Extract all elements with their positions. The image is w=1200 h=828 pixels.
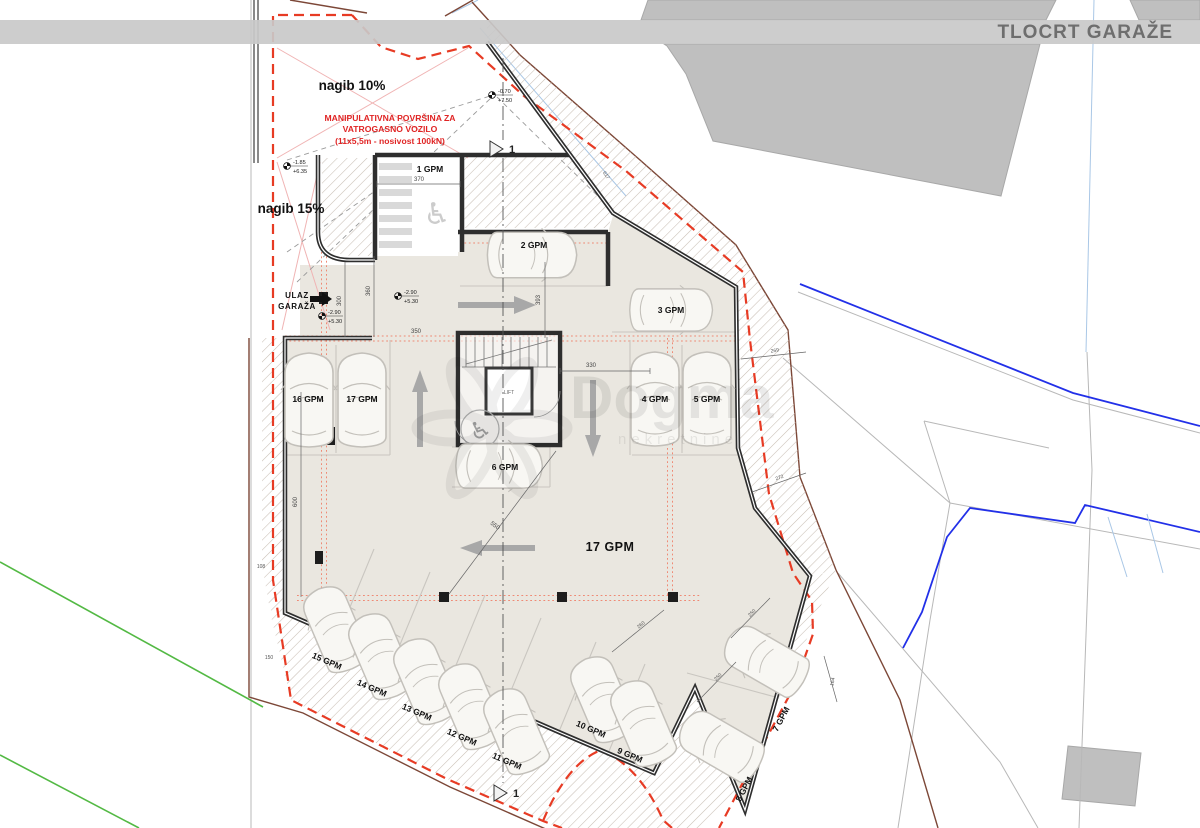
dim-393: 393 (536, 294, 542, 305)
dim-150: 150 (265, 655, 274, 661)
spot-label-16: 16 GPM (292, 394, 323, 404)
terrain-lines-green (0, 562, 263, 828)
section-marker-bottom: 1 (513, 788, 519, 800)
dim-300: 300 (337, 295, 343, 306)
dim-350: 350 (411, 329, 422, 335)
spot-label-4: 4 GPM (642, 394, 668, 404)
spot-label-5: 5 GPM (694, 394, 720, 404)
spot-label-17: 17 GPM (346, 394, 377, 404)
section-marker-top: 1 (509, 144, 515, 156)
watermark-name: Dogma (570, 364, 774, 431)
fire-area-line3: (11x5,5m - nosivost 100kN) (335, 136, 445, 146)
watermark-sub: nekretnine (618, 431, 738, 448)
dim-164: 164 (829, 677, 837, 687)
dim-330: 330 (586, 363, 597, 369)
spot-label-3: 3 GPM (658, 305, 684, 315)
dim-370: 370 (414, 177, 425, 183)
dim-108: 108 (257, 564, 266, 570)
entrance-label-1: ULAZ (285, 291, 309, 300)
building-footprint (1130, 0, 1200, 20)
elevation-lower: +5.30 (328, 319, 342, 325)
elevation-lower: +5.30 (404, 299, 418, 305)
fire-area-line1: MANIPULATIVNA POVRŠINA ZA (325, 112, 456, 123)
elevation-upper: -2.90 (404, 290, 417, 296)
slope-upper-label: nagib 10% (319, 78, 386, 93)
utility-lines-blue (800, 284, 1200, 648)
dim-600: 600 (293, 496, 299, 507)
entrance-label-2: GARAŽA (278, 302, 316, 311)
elevation-upper: -2.90 (328, 310, 341, 316)
spot-label-1: 1 GPM (417, 164, 443, 174)
spot-label-6: 6 GPM (492, 462, 518, 472)
elevation-upper: -1.85 (293, 160, 306, 166)
elevation-lower: +7.50 (498, 98, 512, 104)
elevation-lower: +6.35 (293, 169, 307, 175)
title-band: TLOCRT GARAŽE (0, 20, 1200, 44)
lift-label: LIFT (504, 390, 514, 396)
building-footprint (664, 44, 1040, 196)
slope-lower-label: nagib 15% (258, 201, 325, 216)
zone-label: 17 GPM (586, 540, 635, 554)
floor-plan-svg: ♿ LIFT ♿ (0, 0, 1200, 828)
wheelchair-icon: ♿ (424, 198, 451, 231)
building-footprint (1062, 746, 1141, 806)
dim-360: 360 (366, 285, 372, 296)
elevation-upper: -0.70 (498, 89, 511, 95)
fire-area-line2: VATROGASNO VOZILO (343, 124, 438, 134)
dim-269: 269 (770, 347, 779, 354)
floor-plan-page: ♿ LIFT ♿ (0, 0, 1200, 828)
spot-label-2: 2 GPM (521, 240, 547, 250)
page-title: TLOCRT GARAŽE (997, 21, 1173, 43)
building-footprint (641, 0, 1056, 20)
